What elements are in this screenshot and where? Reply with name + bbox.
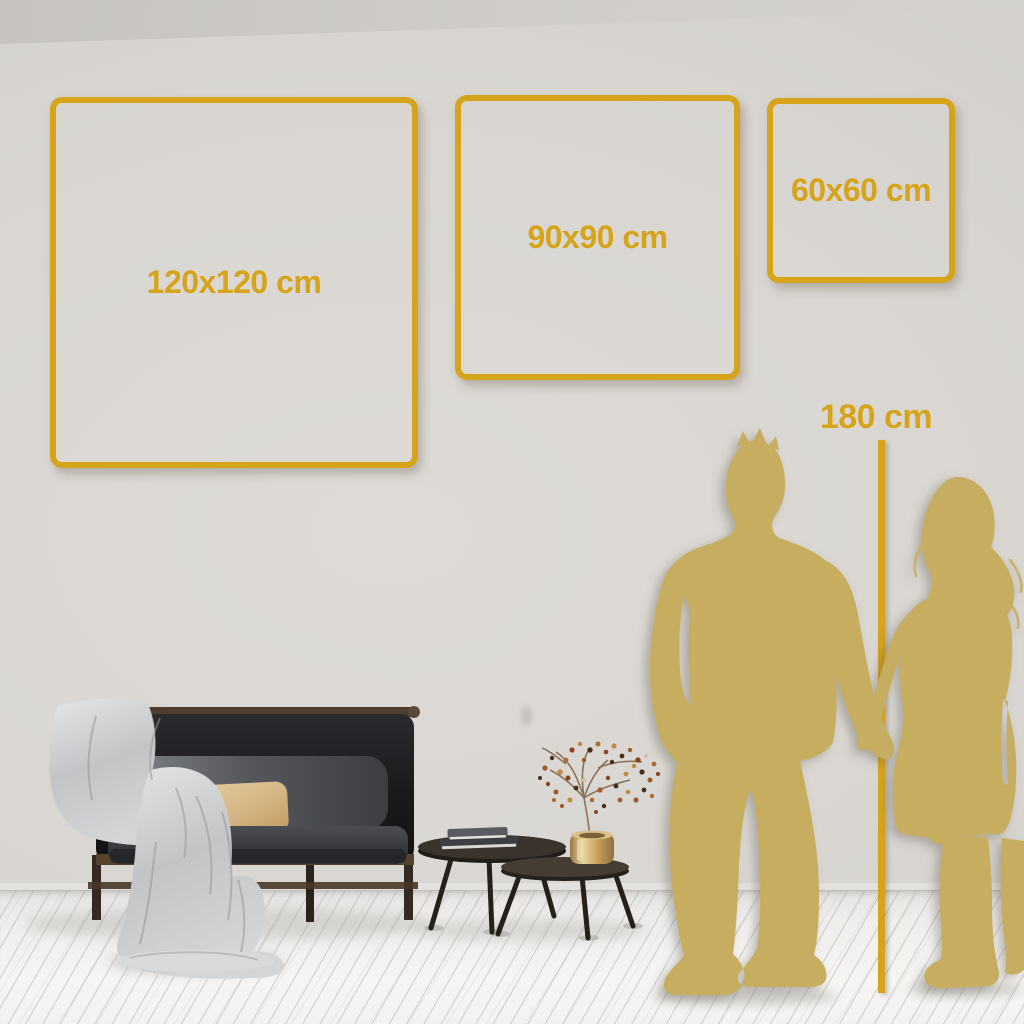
man-silhouette bbox=[650, 441, 894, 995]
woman-back-leg bbox=[1001, 838, 1024, 974]
woman-silhouette bbox=[857, 477, 1016, 844]
couple-silhouette bbox=[0, 0, 1024, 1024]
woman-front-leg bbox=[924, 835, 999, 988]
size-guide-room-scene: 120x120 cm 90x90 cm 60x60 cm 180 cm bbox=[0, 0, 1024, 1024]
